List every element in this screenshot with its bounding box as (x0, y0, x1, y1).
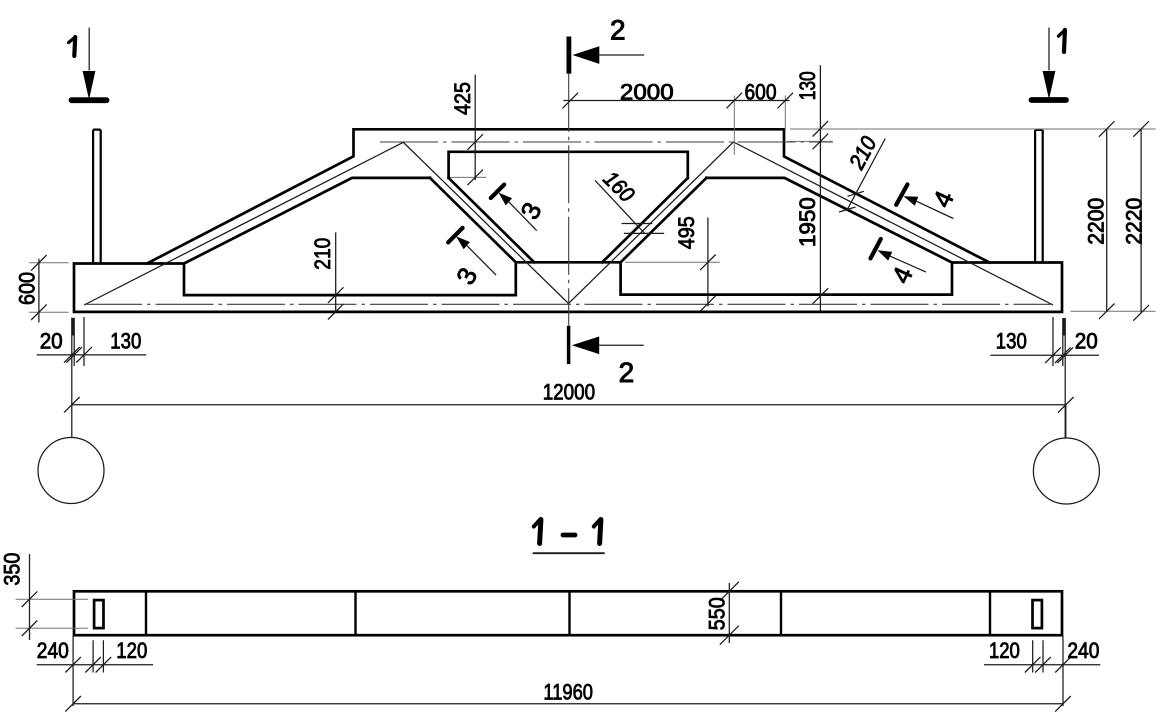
svg-text:2000: 2000 (620, 80, 674, 105)
svg-text:425: 425 (450, 82, 475, 115)
svg-text:12000: 12000 (543, 380, 595, 405)
svg-text:20: 20 (40, 329, 63, 354)
svg-text:600: 600 (745, 80, 777, 105)
svg-text:2: 2 (619, 357, 635, 388)
svg-text:210: 210 (310, 238, 335, 270)
svg-text:120: 120 (116, 638, 147, 663)
svg-text:350: 350 (0, 553, 25, 586)
svg-text:240: 240 (1067, 638, 1099, 663)
svg-text:11960: 11960 (543, 680, 593, 705)
svg-text:240: 240 (37, 638, 69, 663)
svg-text:495: 495 (674, 216, 699, 249)
svg-text:2: 2 (610, 14, 626, 45)
svg-text:20: 20 (1075, 329, 1098, 354)
svg-text:600: 600 (15, 272, 40, 305)
svg-text:2200: 2200 (1083, 198, 1108, 245)
svg-text:130: 130 (795, 71, 820, 100)
svg-text:550: 550 (705, 597, 730, 630)
svg-text:1950: 1950 (795, 197, 820, 247)
svg-text:120: 120 (989, 638, 1020, 663)
svg-text:2220: 2220 (1121, 198, 1146, 245)
svg-text:130: 130 (110, 329, 141, 354)
svg-text:130: 130 (996, 329, 1027, 354)
